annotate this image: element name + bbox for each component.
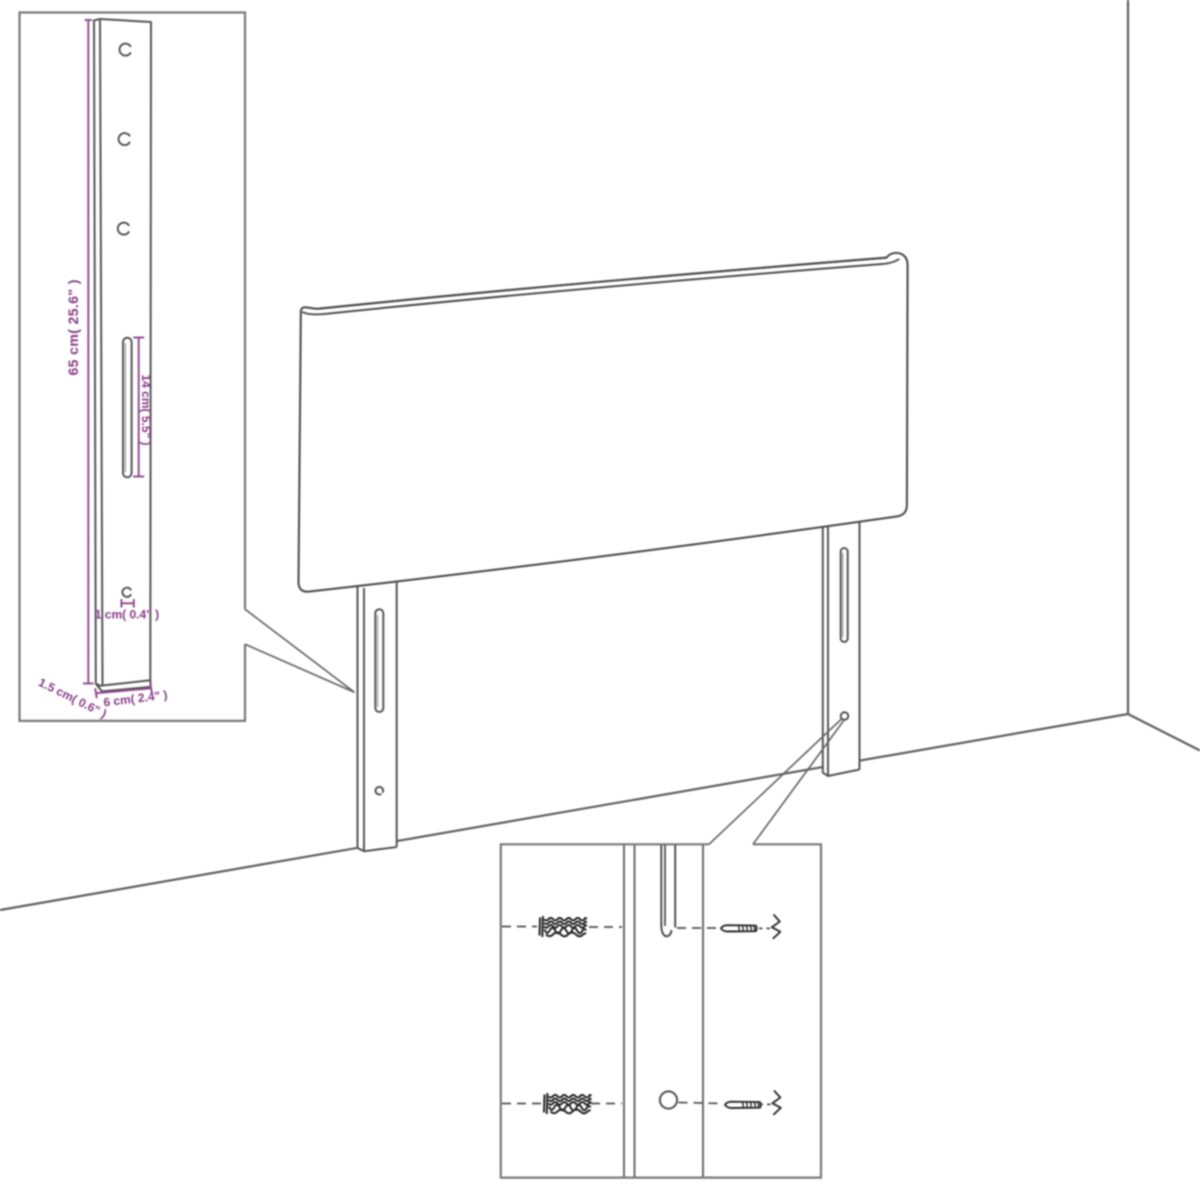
svg-text:65 cm( 25.6" ): 65 cm( 25.6" ) [65, 279, 81, 375]
svg-text:1 cm( 0.4" ): 1 cm( 0.4" ) [95, 607, 159, 621]
svg-text:14 cm( 5.5" ): 14 cm( 5.5" ) [139, 375, 153, 446]
